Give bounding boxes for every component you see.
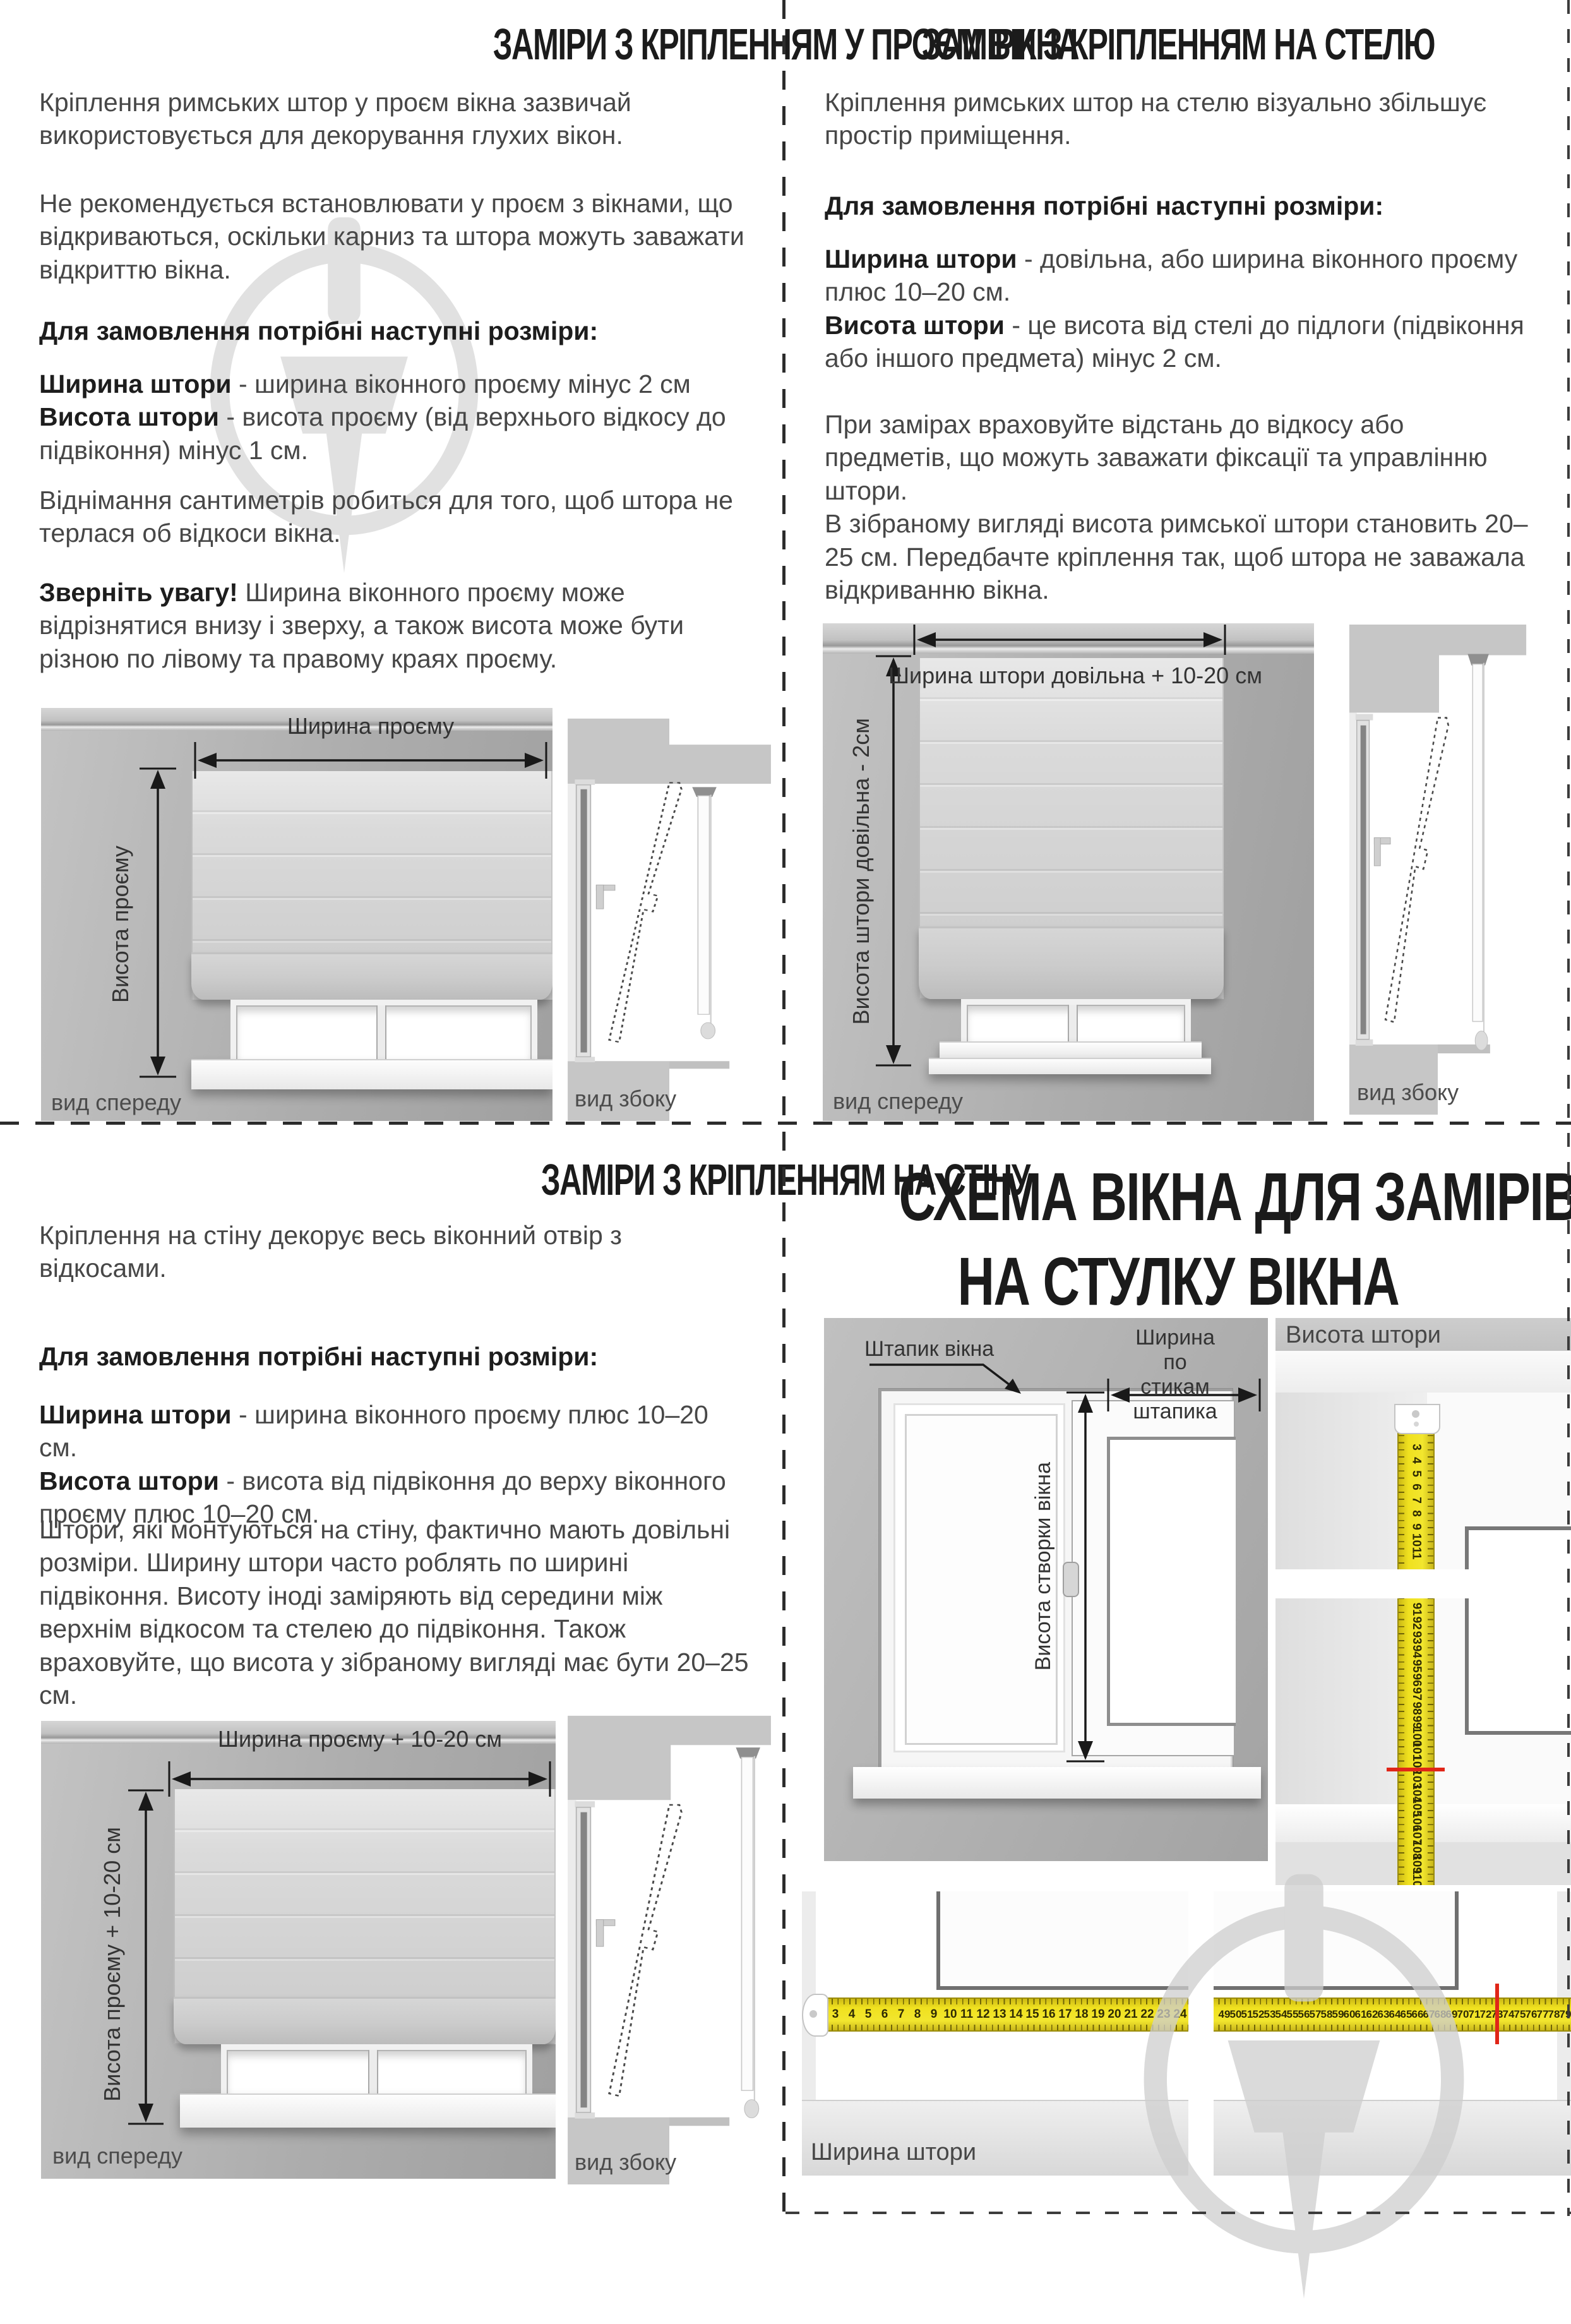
center-vertical-divider — [782, 0, 786, 2216]
bead-width-label: Ширина по стикам штапика — [1129, 1326, 1222, 1424]
q1-paragraph: Зверніть увагу! Ширина віконного проєму … — [39, 576, 753, 675]
measurement-arrows — [823, 623, 1314, 1121]
sash-glass-edge — [1465, 1526, 1571, 1735]
curtain-height-caption: Висота штори — [1286, 1322, 1441, 1349]
opening-width-label: Ширина проєму + 10-20 см — [218, 1726, 502, 1752]
side-view-caption: вид збоку — [575, 1086, 676, 1112]
measurement-red-mark — [1495, 1984, 1499, 2044]
q4-title-line1: СХЕМА ВІКНА ДЛЯ ЗАМІРІВ — [786, 1157, 1571, 1236]
leaflet-page: { "q1": { "title": "ЗАМІРИ З КРІПЛЕННЯМ … — [0, 0, 1571, 2216]
q2-front-view-diagram: Ширина штори довільна + 10-20 см Висота … — [823, 623, 1314, 1121]
tape-numbers: 4950515253545556575859606162636465666768… — [1219, 2005, 1571, 2024]
q3-paragraph: Штори, які монтуються на стіну, фактично… — [39, 1513, 753, 1712]
center-horizontal-divider — [0, 1122, 1571, 1125]
q3-side-view-diagram: вид збоку — [562, 1715, 777, 2184]
q4-window-diagram: Штапик вікна Ширина по стикам штапика Ви… — [824, 1318, 1268, 1861]
glass-corner-lines — [1455, 1891, 1459, 1990]
front-view-caption: вид спереду — [833, 1088, 963, 1115]
q1-paragraph: Не рекомендується встановлювати у проєм … — [39, 187, 753, 286]
q4-height-tape-panel: Висота штори 34567891011 919293949596979… — [1275, 1318, 1571, 1885]
curtain-width-caption: Ширина штори — [811, 2139, 976, 2166]
opening-width-label: Ширина проєму — [287, 713, 454, 740]
roman-shade-side — [736, 1747, 760, 2118]
tape-numbers: 34567891011 — [1399, 1441, 1434, 1560]
tape-tip — [802, 1994, 828, 2037]
ceiling-strip — [1275, 1351, 1571, 1393]
window-corner-right — [1214, 1891, 1571, 2176]
q2-paragraph: Ширина штори - довільна, або ширина віко… — [825, 243, 1538, 375]
q1-paragraph: Кріплення римських штор у проєм вікна за… — [39, 86, 753, 152]
q2-side-view-diagram: вид збоку — [1344, 623, 1531, 1115]
bead-label: Штапик вікна — [864, 1337, 994, 1362]
side-view-caption: вид збоку — [1357, 1079, 1459, 1106]
roman-shade-side — [1467, 654, 1489, 1050]
q3-front-view-diagram: Ширина проєму + 10-20 см Висота проєму +… — [41, 1721, 556, 2179]
q1-side-view-diagram: вид збоку — [562, 702, 777, 1121]
sill-band — [1214, 2100, 1571, 2176]
tape-numbers: 3456789101112131415161718192021222324 — [827, 2005, 1188, 2024]
q1-paragraph: Ширина штори - ширина віконного проєму м… — [39, 368, 753, 467]
q4-width-tape-strip: 3456789101112131415161718192021222324 49… — [802, 1891, 1571, 2176]
measurement-red-mark — [1387, 1768, 1445, 1771]
q2-paragraph: Для замовлення потрібні наступні розміри… — [825, 189, 1538, 222]
q1-paragraph: Для замовлення потрібні наступні розміри… — [39, 314, 753, 347]
front-view-caption: вид спереду — [51, 1089, 181, 1116]
q1-paragraph: Віднімання сантиметрів робиться для того… — [39, 484, 753, 550]
curtain-width-label: Ширина штори довільна + 10-20 см — [888, 662, 1262, 689]
curtain-height-label: Висота штори довільна - 2см — [848, 718, 875, 1025]
q2-paragraph: При замірах враховуйте відстань до відко… — [825, 408, 1538, 607]
opening-height-label: Висота проєму + 10-20 см — [99, 1827, 126, 2102]
q3-paragraph: Ширина штори - ширина віконного проєму п… — [39, 1398, 753, 1531]
sash-height-label: Висота створки вікна — [1031, 1462, 1056, 1670]
roman-shade-side — [692, 787, 717, 1039]
bottom-edge-crop-mark — [786, 2212, 1571, 2214]
q1-front-view-diagram: Ширина проєму Висота проєму вид спереду — [41, 708, 553, 1121]
window-corner-left — [802, 1891, 1188, 2176]
side-view-caption: вид збоку — [575, 2149, 676, 2176]
q3-paragraph: Для замовлення потрібні наступні розміри… — [39, 1340, 753, 1373]
q3-paragraph: Кріплення на стіну декорує весь віконний… — [39, 1219, 753, 1285]
front-view-caption: вид спереду — [52, 2143, 182, 2169]
right-edge-crop-mark — [1567, 0, 1570, 2216]
tape-numbers: 9192939495969798991001011021031041051061… — [1399, 1602, 1434, 1885]
q4-title-line2: НА СТУЛКУ ВІКНА — [786, 1242, 1571, 1321]
q2-title: ЗАМІРИ З КРІПЛЕННЯМ НА СТЕЛЮ — [786, 19, 1571, 69]
image-cut-band — [1275, 1569, 1571, 1598]
opening-height-label: Висота проєму — [107, 846, 134, 1003]
q2-paragraph: Кріплення римських штор на стелю візуаль… — [825, 86, 1538, 152]
